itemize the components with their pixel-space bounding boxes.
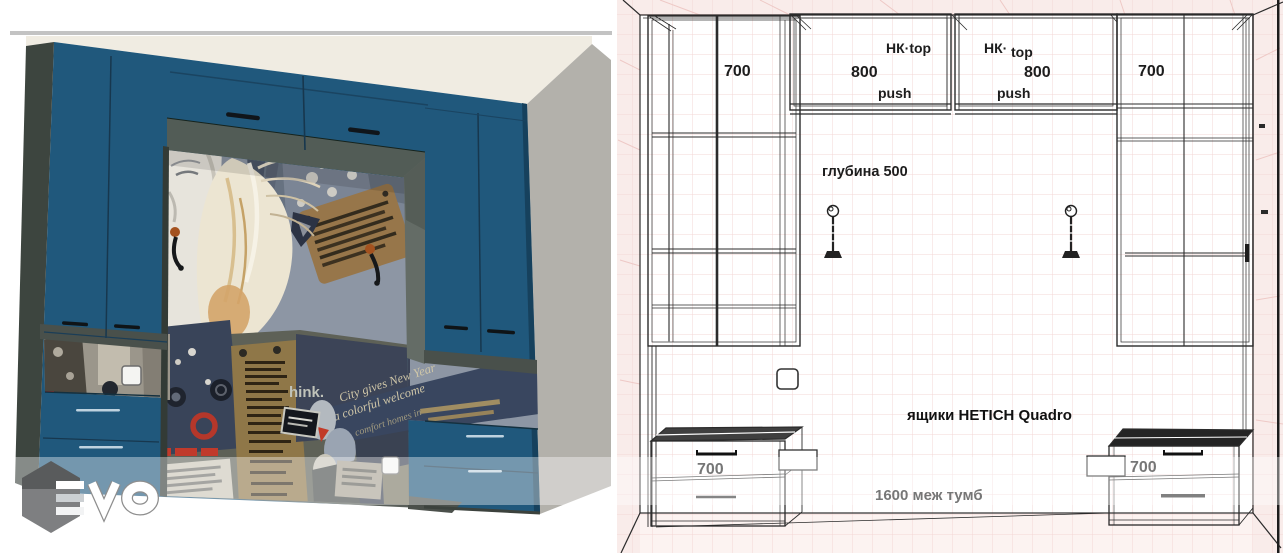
svg-text:глубина 500: глубина 500 (822, 164, 908, 180)
svg-text:700: 700 (1138, 63, 1165, 80)
svg-text:НК·top: НК·top (886, 40, 931, 56)
svg-text:top: top (1011, 44, 1033, 60)
svg-text:push: push (878, 85, 911, 101)
svg-text:ящики HETICH Quadro: ящики HETICH Quadro (907, 407, 1072, 424)
svg-text:800: 800 (1024, 64, 1051, 81)
svg-text:700: 700 (724, 63, 751, 80)
svg-text:hink.: hink. (289, 384, 324, 401)
svg-text:НК·: НК· (984, 40, 1007, 56)
svg-text:push: push (997, 85, 1030, 101)
svg-text:800: 800 (851, 64, 878, 81)
